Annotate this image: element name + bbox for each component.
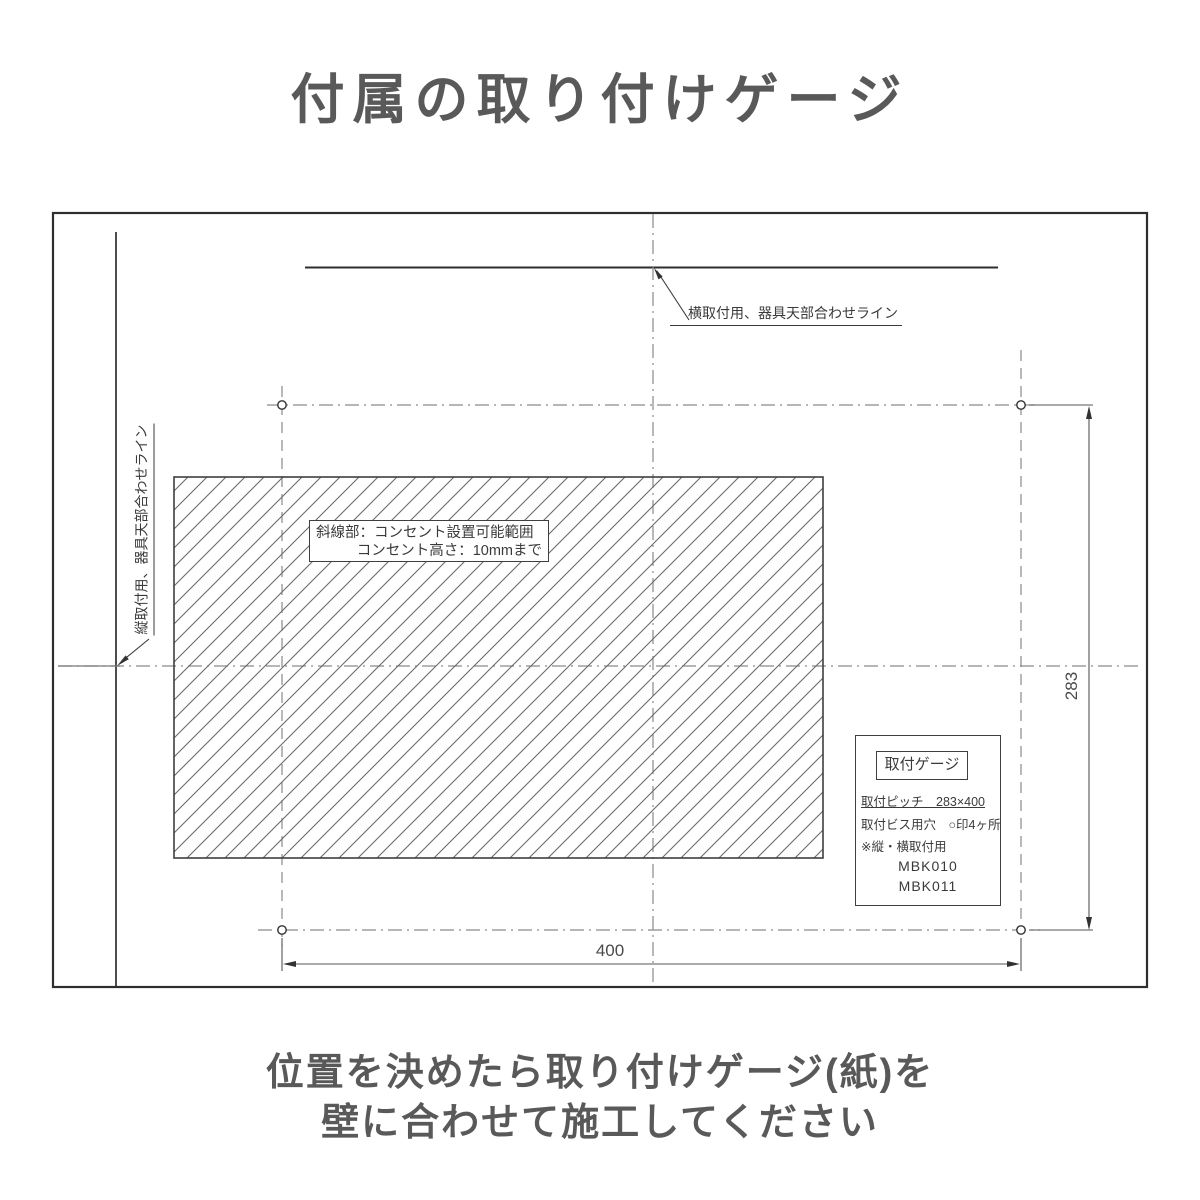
hatch-note-line2: コンセント高さ：10mmまで	[316, 542, 542, 560]
caption-line1: 位置を決めたら取り付けゲージ(紙)を	[0, 1048, 1200, 1098]
height-dim-arrow-down	[1086, 917, 1092, 930]
width-dim-arrow-right	[1007, 961, 1020, 967]
height-dim-arrow-up	[1086, 406, 1092, 419]
height-dimension-value: 283	[1062, 664, 1082, 708]
vertical-mount-label: 縦取付用、器具天部合わせライン	[132, 424, 155, 636]
screw-hole-label: 取付ビス用穴 ○印4ヶ所	[861, 814, 1001, 833]
caption-line2: 壁に合わせて施工してください	[0, 1098, 1200, 1148]
orientation-note: ※縦・横取付用	[861, 836, 946, 855]
model-number-1: MBK010	[856, 858, 1000, 874]
diagram-linework	[0, 0, 1200, 1200]
instruction-page: 付属の取り付けゲージ	[0, 0, 1200, 1200]
gauge-info-box: 取付ゲージ 取付ピッチ 283×400 取付ビス用穴 ○印4ヶ所 ※縦・横取付用…	[855, 735, 1001, 906]
hatch-note-line1: 斜線部：コンセント設置可能範囲	[316, 524, 542, 542]
screw-hole-mark-bottom-right	[1017, 926, 1025, 934]
mounting-pitch-label: 取付ピッチ 283×400	[861, 791, 985, 810]
width-dim-arrow-left	[283, 961, 296, 967]
horizontal-mount-label: 横取付用、器具天部合わせライン	[670, 303, 902, 326]
gauge-info-title: 取付ゲージ	[876, 751, 968, 780]
screw-hole-mark-top-right	[1017, 401, 1025, 409]
mounting-gauge-diagram: 横取付用、器具天部合わせライン 縦取付用、器具天部合わせライン 斜線部：コンセン…	[0, 0, 1200, 1200]
model-number-2: MBK011	[856, 878, 1000, 894]
hatch-note-box: 斜線部：コンセント設置可能範囲 コンセント高さ：10mmまで	[309, 520, 549, 562]
instruction-caption: 位置を決めたら取り付けゲージ(紙)を 壁に合わせて施工してください	[0, 1048, 1200, 1148]
width-dimension-value: 400	[565, 941, 655, 961]
screw-hole-mark-top-left	[278, 401, 286, 409]
screw-hole-mark-bottom-left	[278, 926, 286, 934]
